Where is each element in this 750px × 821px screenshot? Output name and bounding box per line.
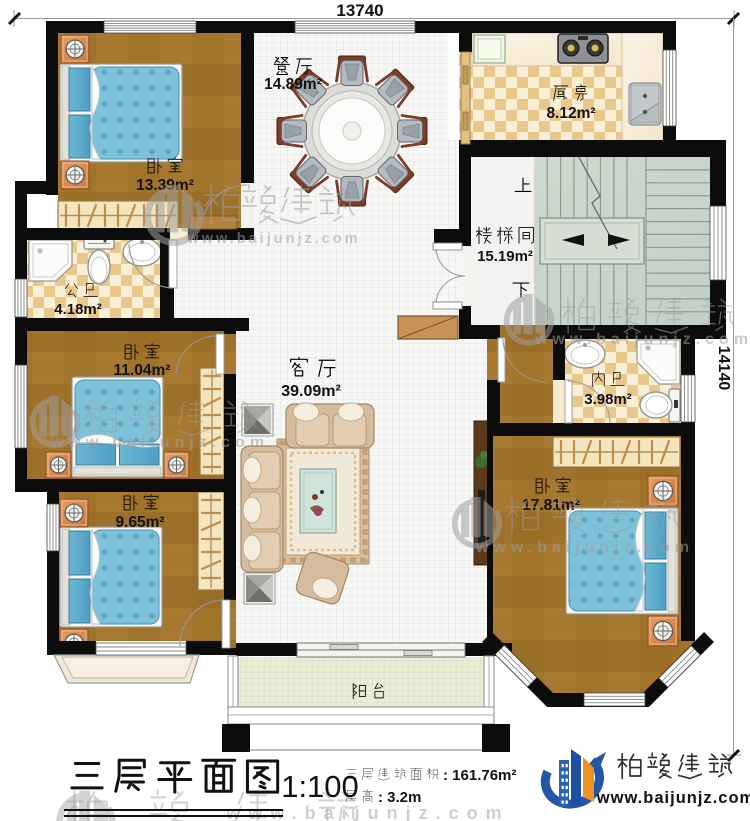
svg-text:17.81m²: 17.81m²: [522, 497, 580, 514]
svg-text:www.baijunjz.com: www.baijunjz.com: [596, 789, 750, 807]
svg-text:: 3.2m: : 3.2m: [378, 789, 421, 806]
svg-text:9.65m²: 9.65m²: [115, 514, 164, 531]
svg-text:: 161.76m²: : 161.76m²: [443, 767, 516, 784]
svg-text:14140: 14140: [715, 346, 732, 391]
svg-text:3.98m²: 3.98m²: [584, 391, 632, 408]
svg-text:www.baijunjz.com: www.baijunjz.com: [225, 803, 509, 821]
svg-text:15.19m²: 15.19m²: [477, 248, 533, 265]
svg-text:4.18m²: 4.18m²: [54, 301, 102, 318]
svg-text:8.12m²: 8.12m²: [546, 105, 595, 122]
svg-text:www.baijunjz.com: www.baijunjz.com: [475, 539, 694, 556]
svg-text:www.baijunjz.com: www.baijunjz.com: [186, 231, 360, 247]
svg-text:11.04m²: 11.04m²: [114, 362, 171, 379]
svg-text:1:100: 1:100: [281, 769, 359, 804]
svg-text:www.baijunjz.com: www.baijunjz.com: [50, 434, 269, 451]
svg-text:14.89m²: 14.89m²: [264, 76, 322, 93]
svg-text:13740: 13740: [336, 1, 383, 20]
svg-text:www.baijunjz.com: www.baijunjz.com: [534, 331, 750, 348]
svg-text:39.09m²: 39.09m²: [281, 383, 341, 400]
